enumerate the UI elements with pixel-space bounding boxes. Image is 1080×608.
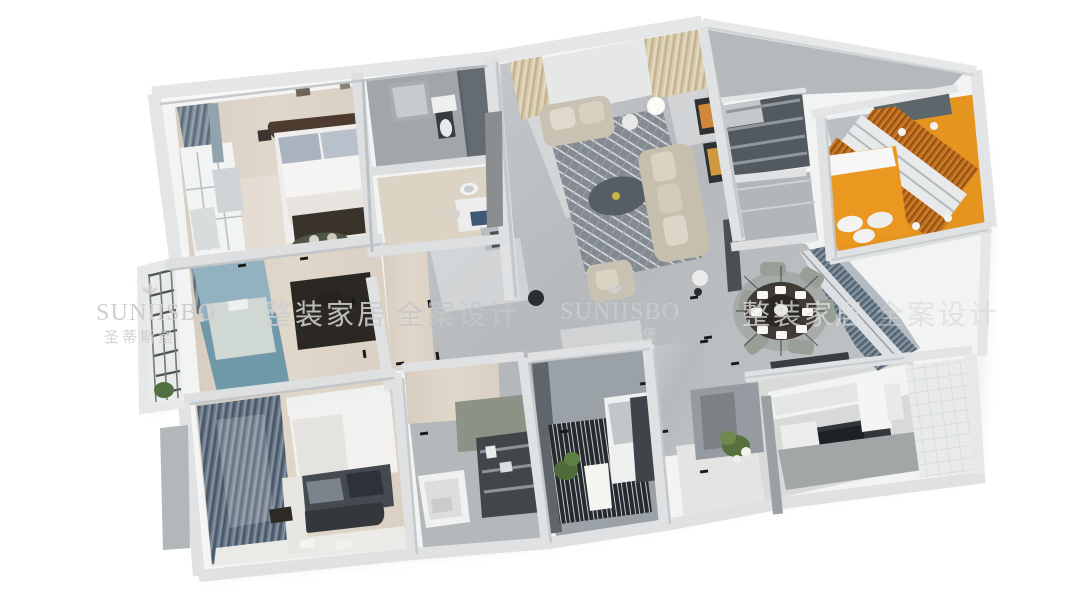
- svg-text:全案设计: 全案设计: [396, 299, 520, 331]
- svg-text:整装家居: 整装家居: [742, 299, 866, 331]
- svg-text:SUNIISBO: SUNIISBO: [96, 300, 216, 326]
- svg-text:SUNIISBO: SUNIISBO: [560, 299, 680, 325]
- svg-text:圣蒂斯堡: 圣蒂斯堡: [104, 329, 176, 346]
- svg-text:圣蒂斯堡: 圣蒂斯堡: [588, 327, 660, 344]
- svg-text:整装家居: 整装家居: [264, 299, 388, 331]
- svg-text:全案设计: 全案设计: [876, 299, 1000, 331]
